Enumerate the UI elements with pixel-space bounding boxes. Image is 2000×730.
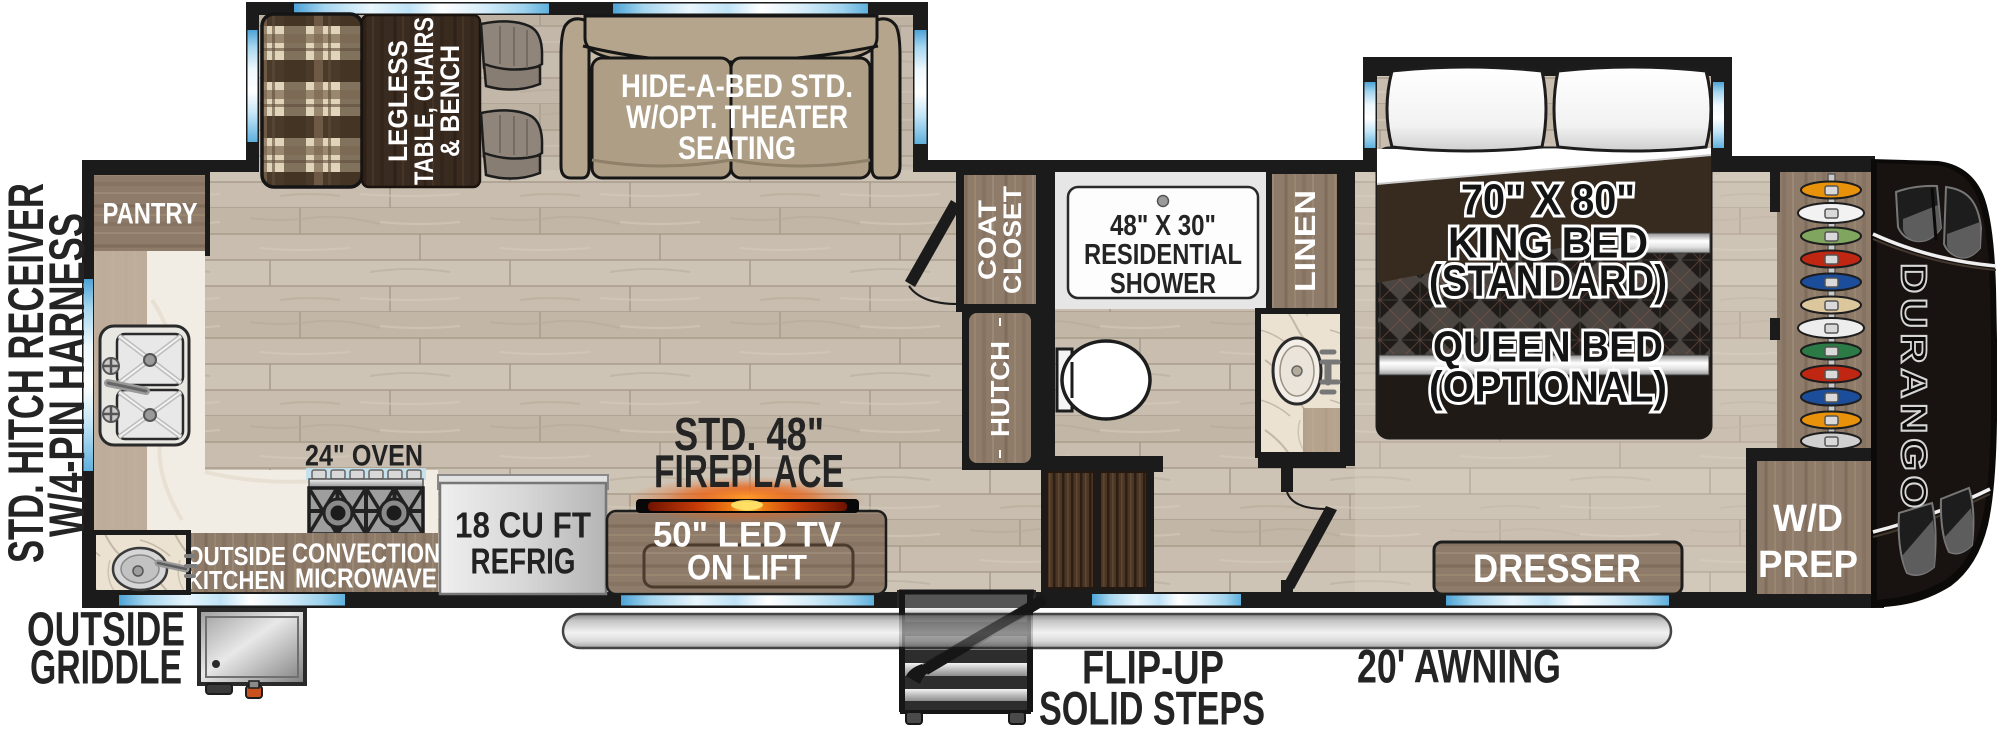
svg-text:(OPTIONAL): (OPTIONAL) [1429, 363, 1667, 412]
svg-text:CLOSET: CLOSET [999, 186, 1027, 294]
svg-text:REFRIG: REFRIG [471, 541, 576, 582]
svg-text:48" X 30": 48" X 30" [1110, 210, 1216, 242]
svg-text:(STANDARD): (STANDARD) [1429, 257, 1667, 306]
svg-text:20' AWNING: 20' AWNING [1357, 640, 1561, 693]
svg-text:COAT: COAT [974, 200, 1002, 280]
svg-text:24" OVEN: 24" OVEN [305, 440, 423, 473]
svg-text:PREP: PREP [1758, 544, 1858, 586]
svg-text:& BENCH: & BENCH [435, 45, 465, 157]
svg-text:W/4-PIN HARNESS: W/4-PIN HARNESS [39, 213, 95, 537]
svg-text:DRESSER: DRESSER [1473, 547, 1641, 591]
svg-text:FIREPLACE: FIREPLACE [654, 445, 844, 497]
svg-text:70" X 80": 70" X 80" [1461, 176, 1635, 225]
svg-text:KITCHEN: KITCHEN [187, 565, 285, 595]
svg-text:SEATING: SEATING [678, 130, 796, 166]
svg-text:MICROWAVE: MICROWAVE [295, 563, 437, 594]
svg-text:LINEN: LINEN [1290, 190, 1322, 292]
svg-text:ON LIFT: ON LIFT [687, 549, 807, 588]
svg-text:DURANGO: DURANGO [1894, 263, 1935, 513]
svg-text:W/D: W/D [1773, 498, 1843, 540]
svg-text:PANTRY: PANTRY [103, 198, 198, 231]
svg-text:SOLID STEPS: SOLID STEPS [1039, 682, 1265, 730]
svg-text:HUTCH: HUTCH [985, 341, 1015, 437]
svg-text:18 CU FT: 18 CU FT [455, 505, 591, 546]
svg-text:GRIDDLE: GRIDDLE [30, 642, 182, 695]
svg-text:RESIDENTIAL: RESIDENTIAL [1084, 239, 1242, 271]
svg-text:SHOWER: SHOWER [1110, 268, 1216, 300]
